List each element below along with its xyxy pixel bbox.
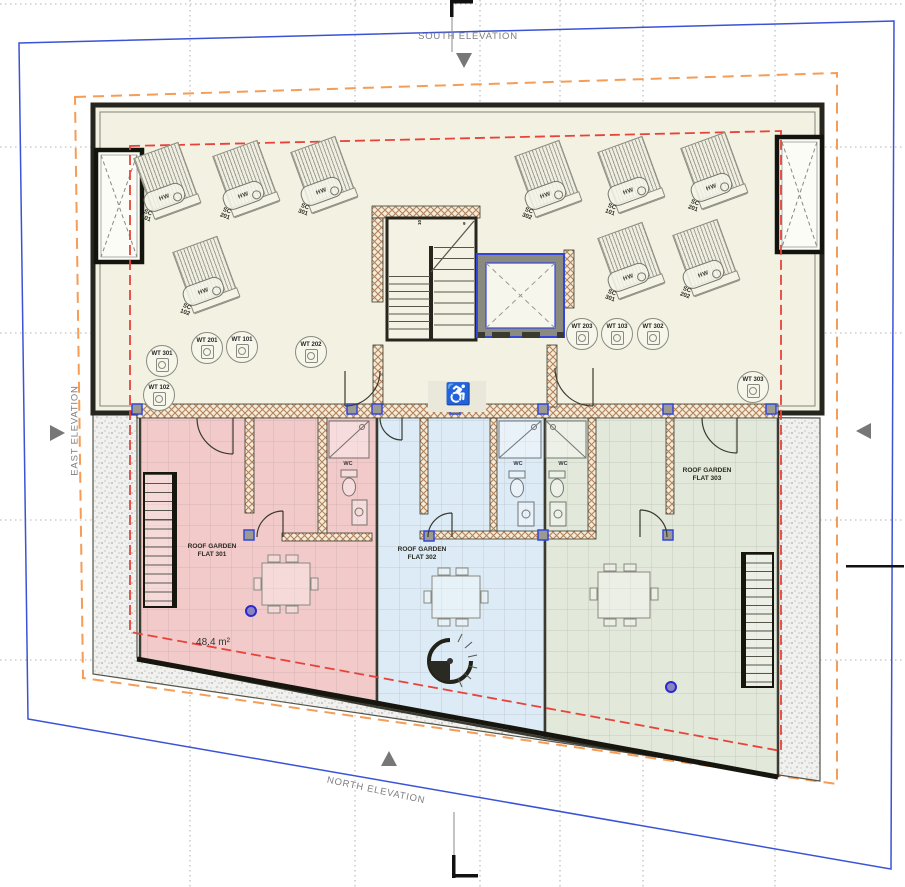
dining-table-301 <box>254 555 318 613</box>
wheelchair-accessible-icon: ♿ <box>445 384 471 405</box>
tank-port <box>238 347 246 355</box>
roof-garden-303-label: ROOF GARDEN FLAT 303 <box>657 467 757 482</box>
hw-label: HW <box>622 187 634 196</box>
roof-drain-303 <box>666 682 676 692</box>
tank-valve <box>647 331 660 345</box>
solar-collector: HWSC 201 <box>690 138 738 204</box>
solar-collector: HWSC 202 <box>682 225 730 291</box>
tank-port <box>749 387 757 395</box>
hw-label: HW <box>697 270 709 279</box>
tank-port <box>158 361 166 369</box>
water-tank-tag: WT 301 <box>151 351 172 357</box>
hw-label: HW <box>705 183 717 192</box>
water-tank: WT 102 <box>143 379 175 411</box>
water-tank: WT 101 <box>226 331 258 363</box>
roof-garden-302-label: ROOF GARDEN FLAT 302 <box>372 546 472 561</box>
rooflight-west <box>96 150 142 262</box>
tank-valve <box>156 358 169 372</box>
area-value-label: 48.4 m² <box>163 637 263 648</box>
hw-cap <box>711 268 723 280</box>
garden-stair-301 <box>143 472 177 608</box>
roof-plan-drawing: SOUTH ELEVATION NORTH ELEVATION EAST ELE… <box>0 0 905 887</box>
tank-port <box>578 334 586 342</box>
dining-table-303 <box>590 564 658 626</box>
tank-valve <box>153 392 166 406</box>
water-tank: WT 201 <box>191 332 223 364</box>
water-tank: WT 202 <box>295 336 327 368</box>
tank-port <box>613 334 621 342</box>
water-tank-tag: WT 202 <box>300 342 321 348</box>
tank-port <box>155 395 163 403</box>
solar-collector: HWSC 102 <box>182 242 230 308</box>
tank-valve <box>576 331 589 345</box>
solar-collector: HWSC 101 <box>143 148 191 214</box>
water-tank-tag: WT 302 <box>642 324 663 330</box>
stair-landing-number: 10 <box>417 220 422 225</box>
hw-label: HW <box>315 187 327 196</box>
hw-cap <box>636 271 648 283</box>
main-stair-flight-up <box>389 276 430 336</box>
tank-port <box>203 348 211 356</box>
hw-cap <box>211 285 223 297</box>
hw-label: HW <box>622 273 634 282</box>
hw-label: HW <box>539 191 551 200</box>
stair-landing-number: 9 <box>463 221 466 226</box>
rooflight-east <box>777 137 822 252</box>
water-tank-tag: WT 103 <box>606 324 627 330</box>
water-tank: WT 103 <box>601 318 633 350</box>
solar-collector: HWSC 302 <box>524 146 572 212</box>
water-tank: WT 303 <box>737 371 769 403</box>
solar-collector: HWSC 101 <box>607 142 655 208</box>
tank-valve <box>747 384 760 398</box>
hw-cap <box>719 181 731 193</box>
wc-label-303: WC <box>549 461 577 467</box>
water-tank-tag: WT 201 <box>196 338 217 344</box>
hw-label: HW <box>197 287 209 296</box>
hw-cap <box>329 185 341 197</box>
water-tank-tag: WT 102 <box>148 385 169 391</box>
solar-collector: HWSC 201 <box>222 146 270 212</box>
elevator-shaft <box>477 254 564 338</box>
south-elevation-label: SOUTH ELEVATION <box>368 31 568 42</box>
water-tank-tag: WT 101 <box>231 337 252 343</box>
wc-label-302: WC <box>504 461 532 467</box>
tank-valve <box>201 345 214 359</box>
hw-cap <box>636 185 648 197</box>
tank-valve <box>305 349 318 363</box>
water-tank: WT 203 <box>566 318 598 350</box>
water-tank-tag: WT 203 <box>571 324 592 330</box>
solar-collector: HWSC 301 <box>300 142 348 208</box>
tank-valve <box>611 331 624 345</box>
hw-cap <box>251 189 263 201</box>
hw-label: HW <box>158 193 170 202</box>
dining-table-302 <box>424 568 488 626</box>
roof-garden-301-label: ROOF GARDEN FLAT 301 <box>162 543 262 558</box>
main-stair-flight-down <box>434 247 474 336</box>
hw-cap <box>172 191 184 203</box>
east-elevation-label: EAST ELEVATION <box>70 331 81 531</box>
hw-cap <box>553 189 565 201</box>
tank-valve <box>236 344 249 358</box>
solar-collector: HWSC 301 <box>607 228 655 294</box>
water-tank-tag: WT 303 <box>742 377 763 383</box>
wc-label-301: WC <box>334 461 362 467</box>
roof-drain-301 <box>246 606 256 616</box>
tank-port <box>649 334 657 342</box>
water-tank: WT 301 <box>146 345 178 377</box>
hw-label: HW <box>237 191 249 200</box>
water-tank: WT 302 <box>637 318 669 350</box>
plan-linework <box>0 0 905 887</box>
garden-stair-303 <box>741 552 774 688</box>
tank-port <box>307 352 315 360</box>
